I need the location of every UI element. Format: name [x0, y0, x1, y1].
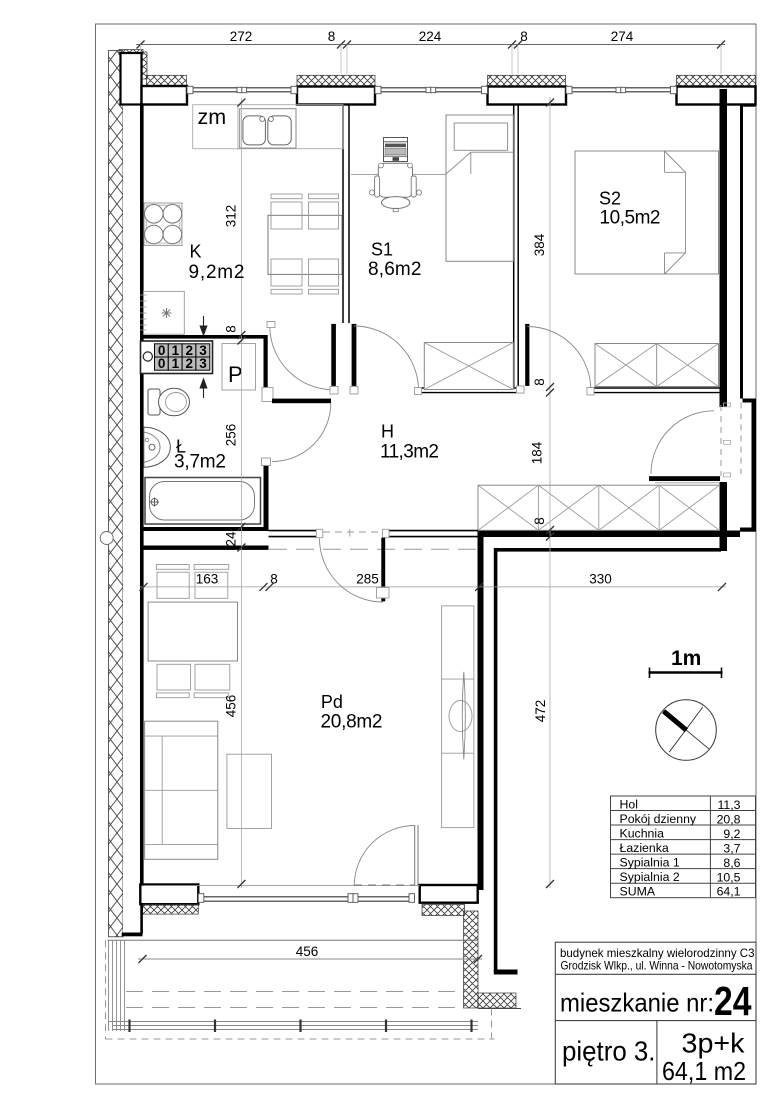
- svg-text:10,5: 10,5: [717, 871, 741, 885]
- svg-text:8: 8: [328, 29, 336, 44]
- svg-text:1: 1: [172, 356, 180, 371]
- svg-text:Hol: Hol: [620, 797, 638, 811]
- svg-text:piętro 3.: piętro 3.: [562, 1036, 656, 1067]
- svg-text:Grodzisk Wlkp., ul. Winna - No: Grodzisk Wlkp., ul. Winna - Nowotomyska: [561, 959, 753, 973]
- svg-text:Sypialnia 1: Sypialnia 1: [620, 855, 680, 869]
- svg-text:8: 8: [270, 572, 278, 587]
- svg-text:256: 256: [224, 424, 239, 447]
- svg-text:2: 2: [185, 356, 193, 371]
- svg-text:0: 0: [158, 356, 166, 371]
- svg-text:Kuchnia: Kuchnia: [620, 826, 665, 840]
- svg-text:P: P: [228, 362, 243, 387]
- svg-text:274: 274: [611, 29, 634, 44]
- svg-text:mieszkanie nr:: mieszkanie nr:: [560, 988, 714, 1018]
- svg-text:S2: S2: [599, 189, 621, 209]
- svg-text:9,2: 9,2: [723, 827, 740, 841]
- svg-text:10,5m2: 10,5m2: [600, 208, 661, 229]
- svg-text:456: 456: [296, 944, 319, 959]
- svg-text:272: 272: [230, 29, 253, 44]
- svg-text:9,2m2: 9,2m2: [189, 262, 245, 283]
- svg-text:8,6m2: 8,6m2: [368, 259, 422, 280]
- svg-text:Sypialnia 2: Sypialnia 2: [620, 870, 680, 884]
- svg-text:24: 24: [224, 531, 239, 547]
- svg-text:3,7m2: 3,7m2: [174, 452, 226, 473]
- svg-text:8,6: 8,6: [723, 856, 740, 870]
- svg-text:S1: S1: [371, 240, 393, 260]
- svg-text:64,1: 64,1: [717, 884, 741, 898]
- svg-text:3: 3: [199, 356, 207, 371]
- svg-text:Pd: Pd: [321, 692, 343, 712]
- svg-text:163: 163: [196, 572, 219, 587]
- svg-text:456: 456: [224, 695, 239, 718]
- svg-text:8: 8: [224, 325, 239, 333]
- svg-text:312: 312: [224, 205, 239, 228]
- svg-text:330: 330: [589, 572, 612, 587]
- svg-text:64,1 m2: 64,1 m2: [662, 1056, 746, 1086]
- svg-text:8: 8: [520, 29, 528, 44]
- svg-text:11,3m2: 11,3m2: [380, 442, 439, 463]
- svg-text:20,8: 20,8: [717, 812, 741, 826]
- svg-text:224: 224: [419, 29, 442, 44]
- svg-text:384: 384: [532, 233, 547, 256]
- svg-text:SUMA: SUMA: [620, 884, 656, 898]
- svg-text:3p+k: 3p+k: [682, 1028, 746, 1059]
- svg-text:3,7: 3,7: [723, 841, 740, 855]
- svg-text:Łazienka: Łazienka: [620, 841, 669, 855]
- svg-text:8: 8: [532, 378, 547, 386]
- svg-text:8: 8: [532, 517, 547, 525]
- svg-text:20,8m2: 20,8m2: [321, 712, 383, 733]
- svg-text:11,3: 11,3: [717, 798, 740, 812]
- svg-text:zm: zm: [198, 105, 227, 129]
- svg-text:Pokój dzienny: Pokój dzienny: [620, 812, 697, 826]
- svg-text:H: H: [381, 422, 394, 442]
- svg-text:K: K: [190, 242, 202, 262]
- svg-text:1m: 1m: [671, 647, 701, 670]
- svg-text:285: 285: [356, 572, 379, 587]
- svg-text:24: 24: [714, 978, 752, 1024]
- svg-text:472: 472: [533, 700, 548, 723]
- svg-text:184: 184: [530, 441, 545, 464]
